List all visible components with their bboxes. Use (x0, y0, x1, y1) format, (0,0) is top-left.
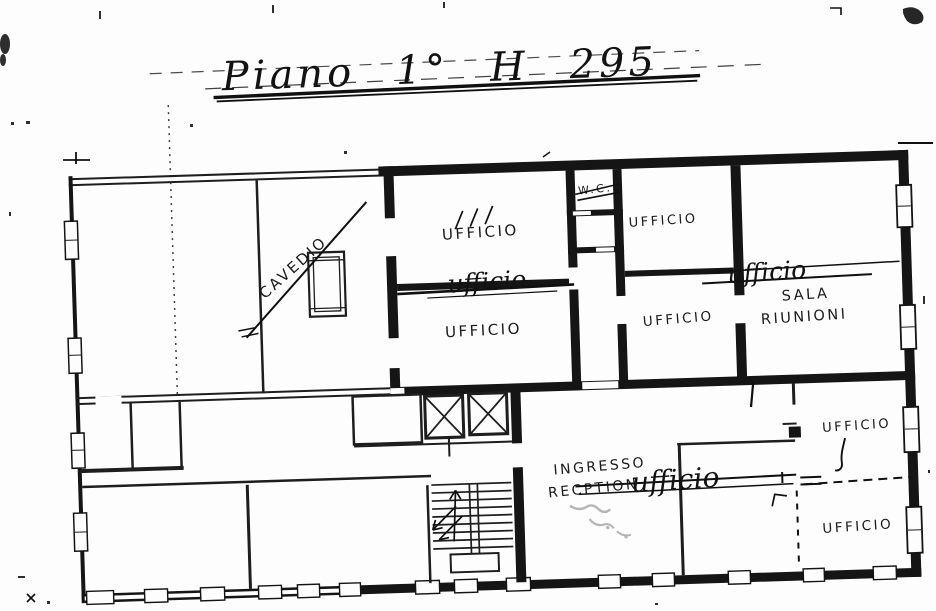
room-label-sala: SALA (781, 286, 830, 305)
script-annotation-ufficio: ufficio (726, 255, 807, 289)
script-annotation-ufficio: ufficio (447, 265, 528, 299)
script-annotation-ufficio: ufficio (630, 461, 720, 500)
floor-plan-drawing: Piano 1° H 295 (0, 0, 936, 611)
room-label-ufficio: UFFICIO (445, 319, 523, 341)
scanned-floor-plan-page: Piano 1° H 295 (0, 0, 936, 611)
